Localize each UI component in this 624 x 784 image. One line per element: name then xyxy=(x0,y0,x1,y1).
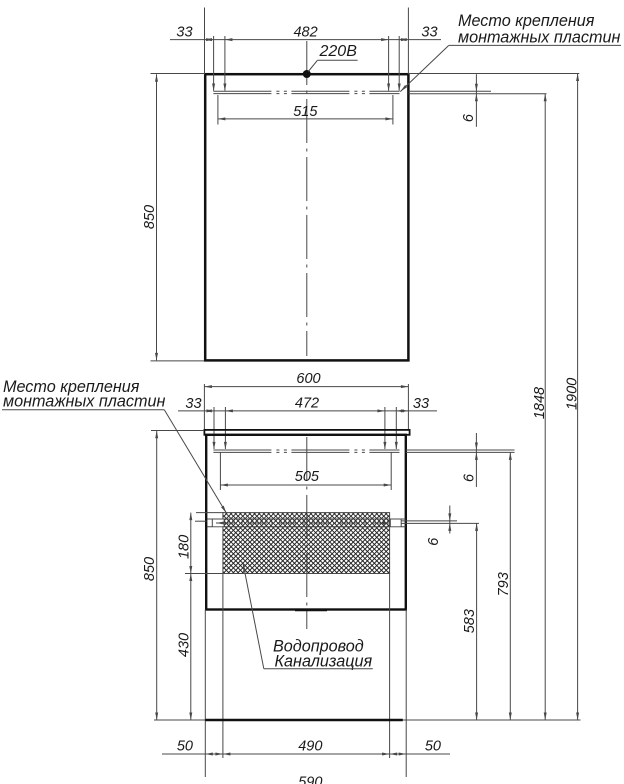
svg-text:850: 850 xyxy=(142,205,158,229)
svg-text:515: 515 xyxy=(293,104,318,120)
svg-text:монтажных пластин: монтажных пластин xyxy=(458,28,620,46)
svg-text:6: 6 xyxy=(462,473,478,482)
svg-text:430: 430 xyxy=(177,633,193,657)
svg-text:50: 50 xyxy=(425,738,441,754)
svg-text:600: 600 xyxy=(296,371,320,387)
svg-text:33: 33 xyxy=(185,396,201,412)
svg-text:Место крепления: Место крепления xyxy=(458,12,595,30)
svg-text:33: 33 xyxy=(176,24,192,40)
svg-text:583: 583 xyxy=(462,609,478,633)
svg-text:220В: 220В xyxy=(319,43,358,60)
svg-text:монтажных пластин: монтажных пластин xyxy=(3,393,165,411)
svg-text:1848: 1848 xyxy=(532,387,548,419)
svg-text:33: 33 xyxy=(421,24,437,40)
svg-text:482: 482 xyxy=(293,24,317,40)
svg-text:1900: 1900 xyxy=(565,378,581,410)
svg-text:Канализация: Канализация xyxy=(275,652,373,670)
svg-text:6: 6 xyxy=(426,537,442,546)
svg-text:50: 50 xyxy=(177,738,193,754)
svg-text:590: 590 xyxy=(298,775,322,784)
svg-text:490: 490 xyxy=(298,738,322,754)
svg-text:793: 793 xyxy=(496,572,512,596)
svg-text:505: 505 xyxy=(295,469,320,485)
svg-text:472: 472 xyxy=(295,395,319,411)
svg-text:6: 6 xyxy=(461,113,477,122)
svg-text:180: 180 xyxy=(177,535,193,559)
svg-text:33: 33 xyxy=(413,396,429,412)
svg-text:850: 850 xyxy=(142,557,158,581)
